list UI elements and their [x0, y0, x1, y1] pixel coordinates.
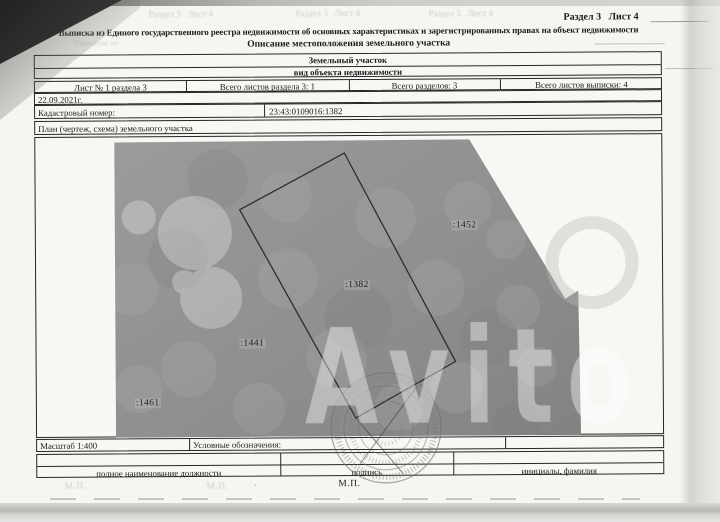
plan-header-label: План (чертеж, схема) земельного участка — [35, 118, 661, 133]
avito-watermark-text: Avito — [304, 310, 645, 444]
section-sheet-header: Раздел 3 Лист 4 — [563, 11, 638, 22]
signature-col-position: полное наименование должности — [37, 468, 280, 478]
scan-speck: ’ — [252, 482, 258, 491]
sheet-info-cell: Лист № 1 раздела 3 — [35, 83, 186, 93]
ghost-section-text: Раздел 3 Лист 4 — [295, 8, 360, 18]
cadastral-row: Кадастровый номер: 23:43:0109016:1382 — [34, 101, 662, 119]
parcel-label: :1452 — [452, 220, 478, 230]
scale-label: Масштаб 1:400 — [40, 442, 97, 451]
sheet-info-cell: Всего разделов: 3 — [349, 81, 500, 91]
divider — [264, 105, 265, 117]
ghost-section-text: Раздел 3 Лист 4 — [428, 8, 493, 18]
parcel-label: :1441 — [239, 339, 265, 349]
sheet-info-cell: Всего листов раздела 3: 1 — [186, 82, 349, 92]
scan-right-edge-shade — [680, 0, 720, 522]
cadastral-label: Кадастровый номер: — [38, 108, 115, 117]
ghost-section-text: Раздел 3 Лист 4 — [148, 9, 213, 19]
object-type-box: Земельный участок вид объекта недвижимос… — [34, 51, 662, 79]
stamp-place-mark: М.П. — [338, 479, 360, 489]
signature-col-sign: подпись — [280, 467, 453, 477]
cadastral-number: 23:43:0109016:1382 — [269, 107, 342, 116]
paper-sheet: Раздел 3 Лист 4 Раздел 3 Лист 4 Раздел 3… — [0, 0, 720, 522]
divider — [189, 439, 190, 450]
plan-map-box: Avito :1452 :1382 :1441 :1461 — [34, 133, 664, 438]
ghost-stamp-mark: М.П. — [64, 482, 86, 492]
scanned-egrn-extract-page: Раздел 3 Лист 4 Раздел 3 Лист 4 Раздел 3… — [0, 0, 720, 522]
watermark-logo-circles — [122, 196, 243, 330]
legend-label: Условные обозначения: — [193, 440, 281, 449]
scan-bottom-edge — [0, 503, 720, 522]
signature-col-name: инициалы, фамилия — [453, 466, 665, 476]
plan-header-row: План (чертеж, схема) земельного участка — [34, 117, 662, 135]
watermark-o-ring — [552, 222, 632, 302]
scan-bottom-streak — [50, 498, 640, 500]
ghost-stamp-mark: М.П. — [206, 482, 228, 492]
sheet-info-cell: Всего листов выписки: 4 — [500, 80, 663, 90]
parcel-label: :1382 — [344, 280, 370, 290]
parcel-label: :1461 — [135, 398, 161, 408]
